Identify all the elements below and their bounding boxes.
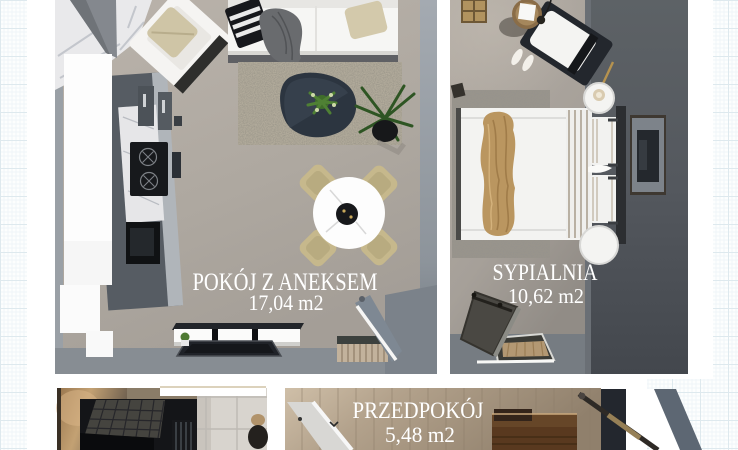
- svg-text:SYPIALNIA: SYPIALNIA: [493, 260, 598, 286]
- svg-text:17,04 m2: 17,04 m2: [249, 290, 324, 315]
- svg-text:10,62 m2: 10,62 m2: [508, 284, 584, 308]
- svg-text:PRZEDPOKÓJ: PRZEDPOKÓJ: [353, 397, 484, 424]
- svg-text:5,48 m2: 5,48 m2: [385, 422, 455, 447]
